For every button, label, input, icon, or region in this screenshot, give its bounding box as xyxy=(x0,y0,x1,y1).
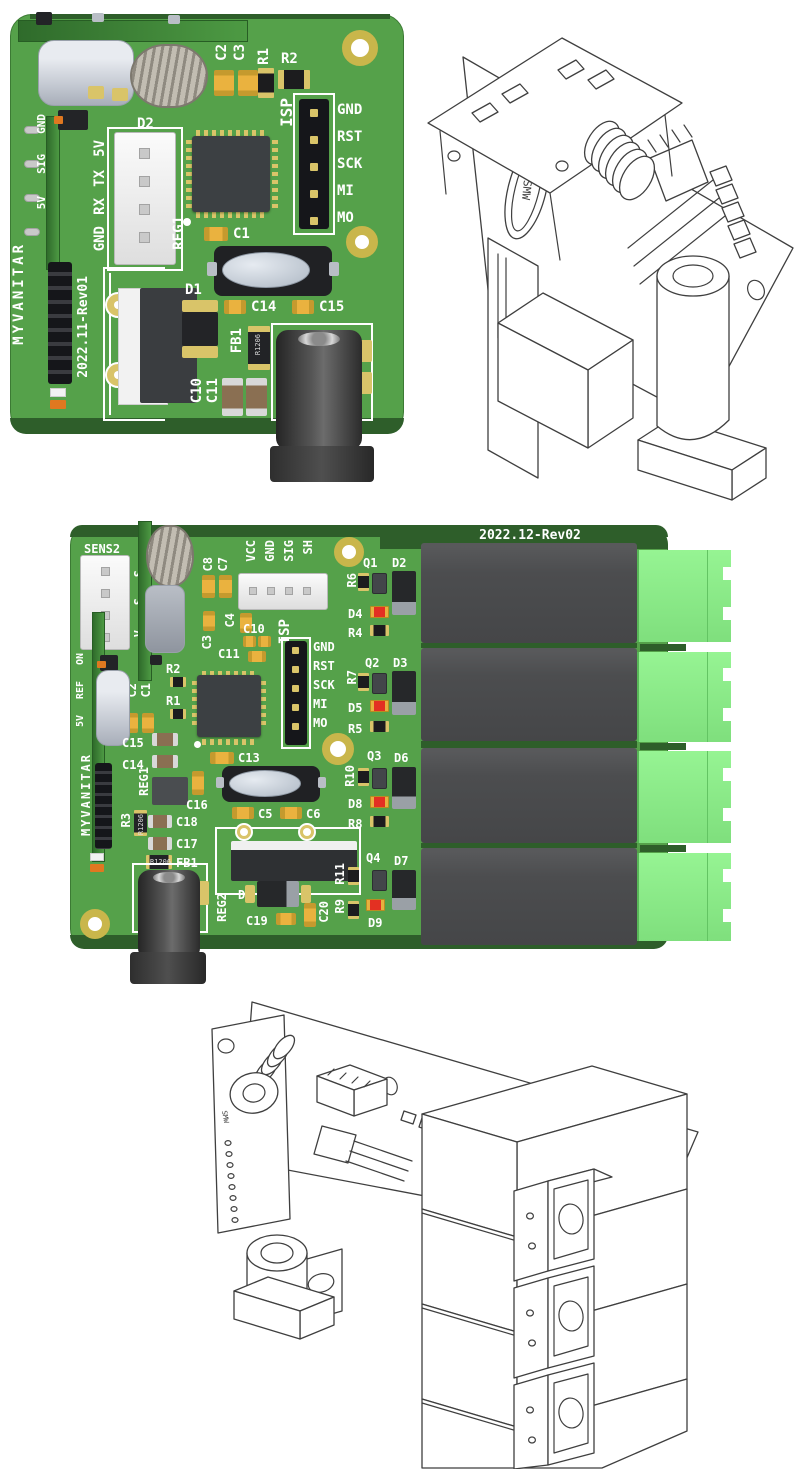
board1-mcu xyxy=(192,136,270,212)
ref-label-r7: R7 xyxy=(346,670,358,684)
ref-label-reg2: REG2 xyxy=(216,893,228,922)
board2-led-d5 xyxy=(370,700,389,712)
board2-signal-pin xyxy=(249,587,257,595)
board1-silk-line xyxy=(103,267,105,421)
terminal-notch xyxy=(723,708,732,721)
sensor-pin-5v: 5V xyxy=(36,196,47,209)
board2-res-r7 xyxy=(358,673,369,691)
terminal-notch xyxy=(723,808,732,821)
wf1-jack-body xyxy=(657,276,729,440)
serial-pin-rx: RX xyxy=(93,198,107,215)
board2-res-r9 xyxy=(348,901,359,919)
ref-label-r1b: R1 xyxy=(166,695,180,707)
terminal-seam xyxy=(707,853,708,941)
board2-dc-jack-base xyxy=(130,952,206,984)
side-pin-ref: REF xyxy=(76,681,86,699)
board1-side-pin xyxy=(24,228,40,236)
board2-cap-c17 xyxy=(148,837,172,850)
board2-res-r5 xyxy=(370,721,389,732)
isp-pin-label-mo: MO xyxy=(337,211,354,225)
ref-label-reg1b: REG1 xyxy=(138,767,150,796)
board2-diode-d3 xyxy=(392,671,416,715)
serial-pin-tx: TX xyxy=(93,170,107,187)
serial-pin-5v: 5V xyxy=(93,140,107,157)
board1-cap-c3 xyxy=(238,70,258,96)
board1-silk-line xyxy=(103,267,165,269)
board1-silk-line xyxy=(103,419,165,421)
board2-led-d9 xyxy=(366,899,385,911)
board2-crystal-lead xyxy=(318,777,326,788)
board1-cap-c2 xyxy=(214,70,234,96)
board2-terminal-tab xyxy=(640,644,686,651)
board2-signal-pin xyxy=(285,587,293,595)
board2-d1-pad xyxy=(245,885,255,903)
board1-cap-c15 xyxy=(292,300,314,314)
board2-led-d8 xyxy=(370,796,389,808)
board1-d2-pin xyxy=(139,204,150,215)
ref-label-c4: C4 xyxy=(224,613,236,627)
board2-res-r11 xyxy=(348,867,359,885)
board2-cap-c3 xyxy=(203,611,215,631)
ref-label-r6: R6 xyxy=(346,573,358,587)
ref-label-r2b: R2 xyxy=(166,663,180,675)
ref-label-c15b: C15 xyxy=(122,737,144,749)
ref-label-fb1: FB1 xyxy=(230,328,244,353)
board2-sensor-side xyxy=(145,585,185,653)
ref-label-c8: C8 xyxy=(202,557,214,571)
board2-transistor-q4 xyxy=(372,870,387,891)
terminal-notch xyxy=(723,607,732,620)
side-pin-on: ON xyxy=(76,653,86,665)
board1-render-panel: C2 C3 R1 R2 ISP GND RST SCK MI MO D2 5V xyxy=(0,0,410,510)
board1-daughterboard-component xyxy=(36,12,52,25)
board1-mounting-hole xyxy=(346,226,378,258)
ref-label-c1b: C1 xyxy=(140,683,152,697)
board1-crystal-lead xyxy=(329,262,339,276)
terminal-notch xyxy=(723,909,732,922)
board1-side-led xyxy=(50,400,66,409)
sens2-label: SENS2 xyxy=(84,543,120,555)
board2-cap-c7 xyxy=(219,575,232,598)
board2-reg1 xyxy=(152,777,188,805)
ref-label-d9: D9 xyxy=(368,917,382,929)
board1-isp-pin xyxy=(310,190,318,198)
conn-pin-vcc: VCC xyxy=(245,540,257,562)
ref-label-c10: C10 xyxy=(190,378,204,403)
board1-isp-pin xyxy=(310,109,318,117)
board2-crystal-lead xyxy=(216,777,224,788)
board1-inductor-coil xyxy=(130,44,208,108)
terminal-notch xyxy=(723,768,732,781)
conn-pin-gnd: GND xyxy=(264,540,276,562)
terminal-notch xyxy=(723,869,732,882)
board2-cap-c19 xyxy=(276,913,296,925)
board2-res-r10 xyxy=(358,768,369,786)
board1-sensor-pad xyxy=(112,88,128,101)
board1-dc-jack-barrel xyxy=(276,330,362,450)
board2-cap-c6 xyxy=(280,807,302,819)
ref-label-c11b: C11 xyxy=(218,648,240,660)
board1-cap-c10 xyxy=(222,378,243,416)
board2-sens2-pin xyxy=(101,567,110,576)
ref-label-c3: C3 xyxy=(233,44,247,61)
board2-diode-d6 xyxy=(392,767,416,809)
board2-terminal-3 xyxy=(637,751,731,843)
isp2-pin-sck: SCK xyxy=(313,679,335,691)
board2-transistor-q3 xyxy=(372,768,387,789)
ref-label-d6: D6 xyxy=(394,752,408,764)
board2-isp-pin xyxy=(292,647,299,654)
board2-side-led2 xyxy=(90,864,104,872)
board2-mounting-hole xyxy=(334,537,364,567)
wf1-header-pin xyxy=(716,184,738,204)
board1-dc-jack-base xyxy=(270,446,374,482)
board2-terminal-tab xyxy=(640,845,686,852)
board2-terminal-tab xyxy=(640,743,686,750)
ref-label-c7: C7 xyxy=(217,557,229,571)
sensor-pin-sig: SIG xyxy=(36,154,47,174)
board2-relay-2 xyxy=(421,648,637,741)
ref-label-c14: C14 xyxy=(251,300,276,314)
board2-terminal-1 xyxy=(637,550,731,642)
ref-label-r9: R9 xyxy=(334,899,346,913)
board1-mcu-pins-right xyxy=(272,140,278,208)
board1-cap-c14 xyxy=(224,300,246,314)
isp-pin-label-gnd: GND xyxy=(337,103,362,117)
board2-cap-c10 xyxy=(243,636,256,647)
board1-side-daughterboard xyxy=(46,116,60,270)
ref-label-r5: R5 xyxy=(348,723,362,735)
board2-res-r1 xyxy=(170,709,186,719)
isp-pin-label-sck: SCK xyxy=(337,157,362,171)
board1-res-r2 xyxy=(278,70,310,89)
board1-revision: 2022.11-Rev01 xyxy=(77,276,90,378)
board1-d1-pad xyxy=(182,346,218,358)
isp2-pin-mo: MO xyxy=(313,717,327,729)
board2-terminal-2 xyxy=(637,652,731,742)
board1-d2-pin xyxy=(139,148,150,159)
r3-marking: R1206 xyxy=(138,814,145,835)
board1-d1-pad xyxy=(182,300,218,312)
terminal-seam xyxy=(707,652,708,742)
board2-pin1-dot xyxy=(194,741,201,748)
ref-label-c19: C19 xyxy=(246,915,268,927)
board1-res-r1 xyxy=(258,68,274,98)
board2-dc-jack-barrel xyxy=(138,870,200,960)
board2-cap-c18 xyxy=(148,815,172,828)
ref-label-c1: C1 xyxy=(233,227,250,241)
wf2-jack-ring xyxy=(247,1235,307,1271)
board1-top-edge xyxy=(30,14,390,19)
isp2-pin-mi: MI xyxy=(313,698,327,710)
ref-label-r10: R10 xyxy=(344,765,356,787)
board1-isp-pin xyxy=(310,163,318,171)
board2-cap-c1 xyxy=(142,713,154,733)
board2-res-r8 xyxy=(370,816,389,827)
ref-label-c2: C2 xyxy=(215,44,229,61)
ref-label-c16: C16 xyxy=(186,799,208,811)
board1-cap-c1 xyxy=(204,227,228,241)
board2-crystal-can xyxy=(229,770,301,797)
page: C2 C3 R1 R2 ISP GND RST SCK MI MO D2 5V xyxy=(0,0,800,1469)
board1-dc-jack-opening xyxy=(298,332,340,346)
board2-cap-c14 xyxy=(152,755,178,768)
board2-cap-c8 xyxy=(202,575,215,598)
board2-side-header xyxy=(95,763,112,849)
board2-isp-pin xyxy=(292,666,299,673)
board2-relay-gap xyxy=(421,741,637,748)
ref-label-c3b: C3 xyxy=(201,635,213,649)
board2-mcu-pins-bottom xyxy=(202,739,258,745)
board2-res-r4 xyxy=(370,625,389,636)
board2-side-led xyxy=(97,661,106,668)
board2-render-panel: 2022.12-Rev02 SENS2 S S V C8 C7 VCC GND … xyxy=(0,515,800,995)
board2-cap-c5 xyxy=(232,807,254,819)
board2-daughterboard-component xyxy=(150,655,162,665)
conn-pin-sh: SH xyxy=(302,540,314,554)
ref-label-r2: R2 xyxy=(281,52,298,66)
board2-res-r6 xyxy=(358,573,369,591)
ref-label-d1: D1 xyxy=(185,283,202,297)
board1-isp-pin xyxy=(310,136,318,144)
board2-cap-c10b xyxy=(258,636,271,647)
board1-mcu-pins-bottom xyxy=(196,212,268,218)
board2-cap-c11 xyxy=(248,651,266,662)
board2-relay-3 xyxy=(421,748,637,843)
ref-label-d5: D5 xyxy=(348,702,362,714)
ref-label-d8: D8 xyxy=(348,798,362,810)
isp-pin-label-mi: MI xyxy=(337,184,354,198)
terminal-seam xyxy=(707,550,708,642)
board1-daughterboard-pin xyxy=(92,13,104,22)
isp-pin-label-rst: RST xyxy=(337,130,362,144)
fb1-marking: R1206 xyxy=(255,334,262,355)
board2-mounting-hole-center xyxy=(322,733,354,765)
ref-label-c17: C17 xyxy=(176,838,198,850)
board2-signal-pin xyxy=(267,587,275,595)
wf1-header-pin xyxy=(710,166,732,186)
ref-label-r11: R11 xyxy=(334,863,346,885)
wireframe1-drawing: SMW xyxy=(410,8,800,510)
board2-coil xyxy=(146,525,194,587)
ref-label-c11: C11 xyxy=(206,378,220,403)
board2-relay-4 xyxy=(421,848,637,945)
board1-sensor-pad xyxy=(88,86,104,99)
ref-label-d7: D7 xyxy=(394,855,408,867)
board2-transistor-q2 xyxy=(372,673,387,694)
board2-terminal-4 xyxy=(637,853,731,941)
ref-label-q2: Q2 xyxy=(365,657,379,669)
board1-diode-d1 xyxy=(182,312,218,346)
board2-led-d4 xyxy=(370,606,389,618)
board2-side-sensor xyxy=(96,670,130,746)
board2-isp-pin xyxy=(292,723,299,730)
board2-revision: 2022.12-Rev02 xyxy=(430,529,630,542)
serial-pin-gnd: GND xyxy=(93,226,107,251)
ref-label-c10b: C10 xyxy=(243,623,265,635)
ref-label-c5: C5 xyxy=(258,808,272,820)
isp2-pin-gnd: GND xyxy=(313,641,335,653)
board2-mcu xyxy=(197,675,261,737)
board2-relay-1 xyxy=(421,543,637,643)
board1-crystal-lead xyxy=(207,262,217,276)
board2-cap-c13 xyxy=(210,752,234,764)
board2-cap-c15 xyxy=(152,733,178,746)
board1-d2-pin xyxy=(139,176,150,187)
terminal-notch xyxy=(723,668,732,681)
board1-isp-pin xyxy=(310,217,318,225)
board2-d1-pad xyxy=(301,885,311,903)
board2-mounting-hole-bl xyxy=(80,909,110,939)
board2-isp-pin xyxy=(292,704,299,711)
ref-label-r4: R4 xyxy=(348,627,362,639)
ref-label-r3: R3 xyxy=(120,813,132,827)
conn-pin-sig: SIG xyxy=(283,540,295,562)
ref-label-d3: D3 xyxy=(393,657,407,669)
board2-sens2-pin xyxy=(101,589,110,598)
ref-label-c18: C18 xyxy=(176,816,198,828)
terminal-seam xyxy=(707,751,708,843)
board2-res-r2 xyxy=(170,677,186,687)
board2-side-cap xyxy=(90,853,104,861)
ref-label-r1: R1 xyxy=(257,48,271,65)
board1-mounting-hole xyxy=(342,30,378,66)
sensor-pin-gnd: GND xyxy=(36,114,47,134)
ref-label-reg1: REG1 xyxy=(172,216,186,250)
board2-diode-d1 xyxy=(257,881,299,907)
ref-label-c6: C6 xyxy=(306,808,320,820)
board1-crystal-can xyxy=(222,252,310,288)
board1-side-header xyxy=(48,262,72,384)
board2-dc-jack-opening xyxy=(153,872,185,883)
wireframe2-panel: SMW xyxy=(182,991,702,1469)
board1-d2-pin xyxy=(139,232,150,243)
board2-cap-c16 xyxy=(192,771,204,795)
wireframe1-panel: SMW xyxy=(410,8,800,510)
board2-cap-c20 xyxy=(304,903,316,927)
isp2-pin-rst: RST xyxy=(313,660,335,672)
board1-cap-c11 xyxy=(246,378,267,416)
ref-label-q3: Q3 xyxy=(367,750,381,762)
board2-transistor-q1 xyxy=(372,573,387,594)
terminal-notch xyxy=(723,567,732,580)
ref-label-c15: C15 xyxy=(319,300,344,314)
board2-diode-d2 xyxy=(392,571,416,615)
board2-isp-pin xyxy=(292,685,299,692)
board2-signal-pin xyxy=(303,587,311,595)
ref-label-d2b: D2 xyxy=(392,557,406,569)
ref-label-c20: C20 xyxy=(318,901,330,923)
board1-orange-led xyxy=(54,116,63,124)
board1-sensor-daughterboard-edge xyxy=(18,20,248,42)
ref-label-c13: C13 xyxy=(238,752,260,764)
board1-daughterboard-pin xyxy=(168,15,180,24)
wf1-jack-top xyxy=(657,256,729,296)
board2-pad-hole xyxy=(235,823,253,841)
board2-diode-d7 xyxy=(392,870,416,910)
side-pin-5v: 5V xyxy=(76,715,86,727)
board2-pad-hole xyxy=(298,823,316,841)
wf1-plate-hole xyxy=(448,151,460,161)
ref-label-d4: D4 xyxy=(348,608,362,620)
wireframe2-drawing: SMW xyxy=(182,991,702,1469)
board2-brand: MYVANITAR xyxy=(80,753,92,836)
isp-label: ISP xyxy=(279,98,295,127)
board1-side-cap xyxy=(50,388,66,397)
ref-label-q4: Q4 xyxy=(366,852,380,864)
ref-label-q1: Q1 xyxy=(363,557,377,569)
board1-brand: MYVANITAR xyxy=(12,242,26,345)
